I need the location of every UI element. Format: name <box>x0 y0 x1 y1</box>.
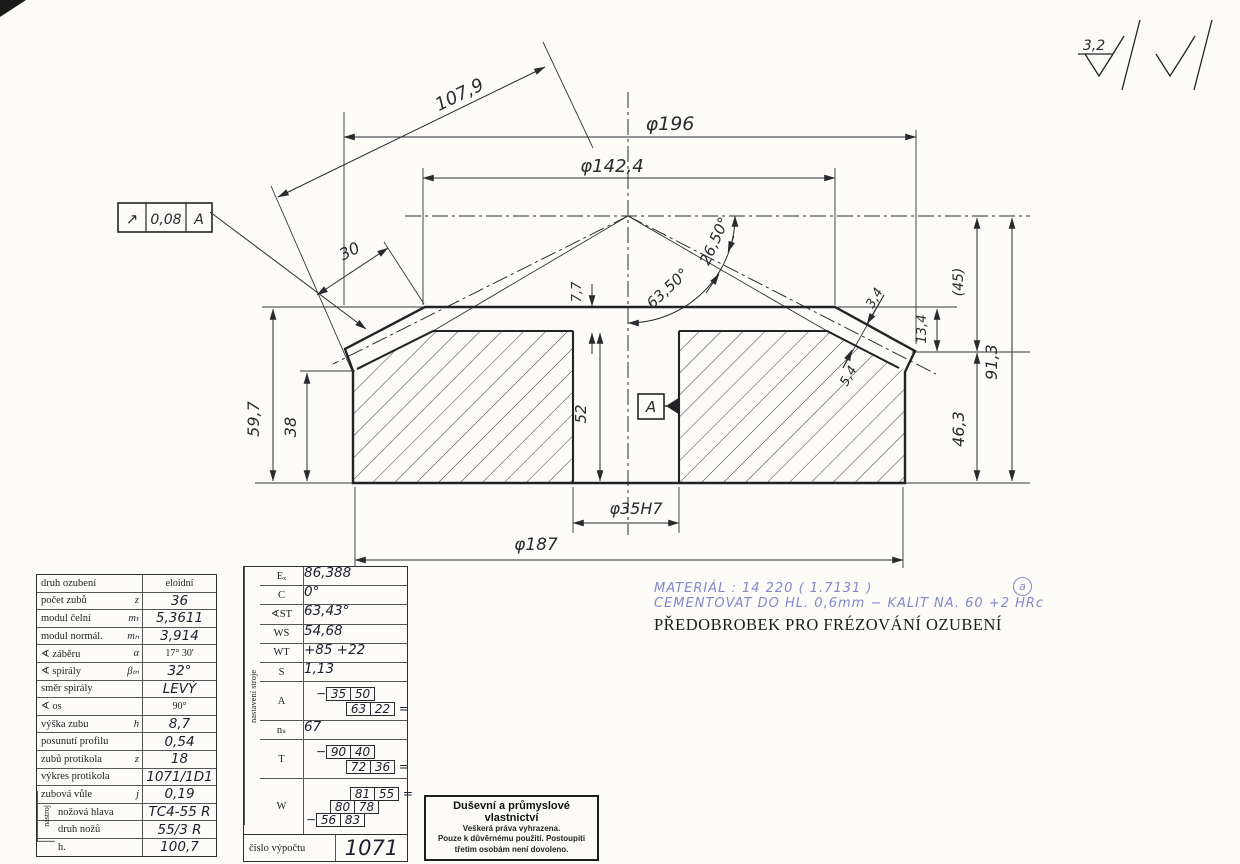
datum-letter: A <box>645 398 656 416</box>
tool-group-label: nástroj <box>37 791 55 842</box>
table-row: WS54,68 <box>260 624 407 643</box>
table-row-A: A −3550 6322 = <box>260 681 407 720</box>
tolerance-value: 0,08 <box>150 212 181 228</box>
gear-parameter-table: druh ozubeníeloidní počet zubůz36 modul … <box>36 574 217 857</box>
param-label: modul čelní <box>41 613 91 624</box>
drawing-sheet: ↗ 0,08 A A 3,2 φ196 φ142,4 107,9 30 7,7 … <box>0 0 1240 864</box>
calculation-number-row: číslo výpočtu 1071 <box>244 834 407 861</box>
extension-lines <box>255 42 1030 568</box>
runout-leader <box>210 212 366 329</box>
table-row: nₛ67 <box>260 720 407 739</box>
material-note: MATERIÁL : 14 220 ( 1.7131 ) <box>654 581 1074 596</box>
table-row: ∢ST63,43° <box>260 604 407 623</box>
param-label: modul normál. <box>41 631 103 642</box>
tolerance-datum-ref: A <box>193 212 204 228</box>
param-value: LEVÝ <box>143 680 216 698</box>
param-label: ∢ záběru <box>41 648 80 660</box>
param-value: +85 +22 <box>304 644 407 662</box>
param-value: 17° 30' <box>143 644 216 662</box>
param-label: h. <box>58 842 66 853</box>
dim-left-height: 59,7 <box>244 400 263 436</box>
table-row: WT+85 +22 <box>260 643 407 662</box>
param-value: 86,388 <box>304 567 407 585</box>
copyright-line: třetím osobám není dovoleno. <box>428 845 595 855</box>
table-row-W: W 8155 = 8078 −5683 <box>260 778 407 834</box>
surface-finish-marks <box>1078 20 1212 90</box>
param-value: 55/3 R <box>143 820 216 838</box>
dim-bottom-diameter: φ187 <box>514 535 558 555</box>
param-label: posunutí profilu <box>41 736 108 747</box>
param-value: 54,68 <box>304 625 407 643</box>
dim-cone-angle: 63,50° <box>643 265 692 313</box>
calc-number-value: 1071 <box>336 835 407 861</box>
param-value: 63,43° <box>304 605 407 623</box>
param-value: 32° <box>143 662 216 680</box>
dimension-lines <box>273 67 1012 560</box>
heat-treatment-note: CEMENTOVAT DO HL. 0,6mm − KALIT NA. 60 +… <box>654 596 1074 611</box>
param-value: 67 <box>304 721 407 739</box>
counter-setting-T: −9040 7236 = <box>304 740 409 778</box>
param-label: směr spirály <box>41 683 93 694</box>
table-row: C0° <box>260 585 407 604</box>
runout-symbol-icon: ↗ <box>126 210 139 228</box>
machine-settings-table: nastavení stroje Eₓ86,388 C0° ∢ST63,43° … <box>243 566 408 862</box>
scan-corner-mark <box>0 0 26 17</box>
datum-flag: A <box>638 394 680 419</box>
table-row-T: T −9040 7236 = <box>260 739 407 778</box>
param-value: 1,13 <box>304 663 407 681</box>
param-label: druh ozubení <box>41 578 96 589</box>
dim-bore-diameter: φ35H7 <box>609 499 663 518</box>
param-label: ∢ os <box>41 700 62 712</box>
dim-shoulder-height: 38 <box>281 417 300 437</box>
param-value: 36 <box>143 592 216 610</box>
counter-setting-A: −3550 6322 = <box>304 682 409 720</box>
param-label: výška zubu <box>41 719 89 730</box>
param-value: 18 <box>143 750 216 768</box>
param-value: 3,914 <box>143 627 216 645</box>
dim-total-height: 91,3 <box>982 344 1001 380</box>
param-value: 0,54 <box>143 732 216 750</box>
param-value: 5,3611 <box>143 609 216 627</box>
dim-rim-depth: 7,7 <box>570 281 585 302</box>
calc-number-label: číslo výpočtu <box>244 835 336 861</box>
param-value: 1071/1D1 <box>143 768 216 786</box>
table-row: S1,13 <box>260 662 407 681</box>
dim-rim-step: 13,4 <box>915 315 930 344</box>
roughness-mark-icon <box>1078 20 1140 90</box>
copyright-line: Pouze k důvěrnému použití. Postoupiti <box>428 834 595 844</box>
param-label: nožová hlava <box>58 807 114 818</box>
param-value: TC4-55 R <box>143 803 216 821</box>
machining-mark-icon <box>1156 20 1212 90</box>
section-hatching <box>353 331 905 483</box>
param-value: 90° <box>143 697 216 715</box>
copyright-line: Veškerá práva vyhrazena. <box>428 824 595 834</box>
revision-mark: a <box>1013 577 1032 596</box>
dim-ref-45: (45) <box>951 268 967 297</box>
param-label: počet zubů <box>41 595 87 606</box>
dim-outer-diameter: φ196 <box>646 113 695 135</box>
param-label: ∢ spirály <box>41 665 81 677</box>
notes-block: MATERIÁL : 14 220 ( 1.7131 ) CEMENTOVAT … <box>654 581 1074 635</box>
copyright-box: Duševní a průmyslové vlastnictví Veškerá… <box>424 795 599 861</box>
copyright-title: Duševní a průmyslové vlastnictví <box>428 800 595 824</box>
param-value: 0° <box>304 586 407 604</box>
dim-inner-top-diameter: φ142,4 <box>580 156 643 177</box>
roughness-value: 3,2 <box>1083 38 1105 54</box>
param-label: druh nožů <box>58 824 100 835</box>
param-label: výkres protikola <box>41 771 110 782</box>
machine-side-label: nastavení stroje <box>244 567 261 825</box>
param-value: 0,19 <box>143 785 216 803</box>
drawing-title: PŘEDOBROBEK PRO FRÉZOVÁNÍ OZUBENÍ <box>654 615 1074 635</box>
param-value: eloidní <box>143 575 216 592</box>
table-row: Eₓ86,388 <box>260 567 407 585</box>
dim-bore-depth: 52 <box>572 404 590 423</box>
param-value: 100,7 <box>143 838 216 856</box>
counter-setting-W: 8155 = 8078 −5683 <box>304 779 413 834</box>
dim-right-height: 46,3 <box>949 411 968 447</box>
param-label: zubů protikola <box>41 754 102 765</box>
dim-face-width: 30 <box>336 238 363 264</box>
tolerance-frame: ↗ 0,08 A <box>118 203 212 232</box>
dim-back-angle: 26,50° <box>696 214 733 267</box>
dim-slant-length: 107,9 <box>432 74 488 115</box>
datum-triangle-icon <box>666 397 680 415</box>
param-value: 8,7 <box>143 715 216 733</box>
